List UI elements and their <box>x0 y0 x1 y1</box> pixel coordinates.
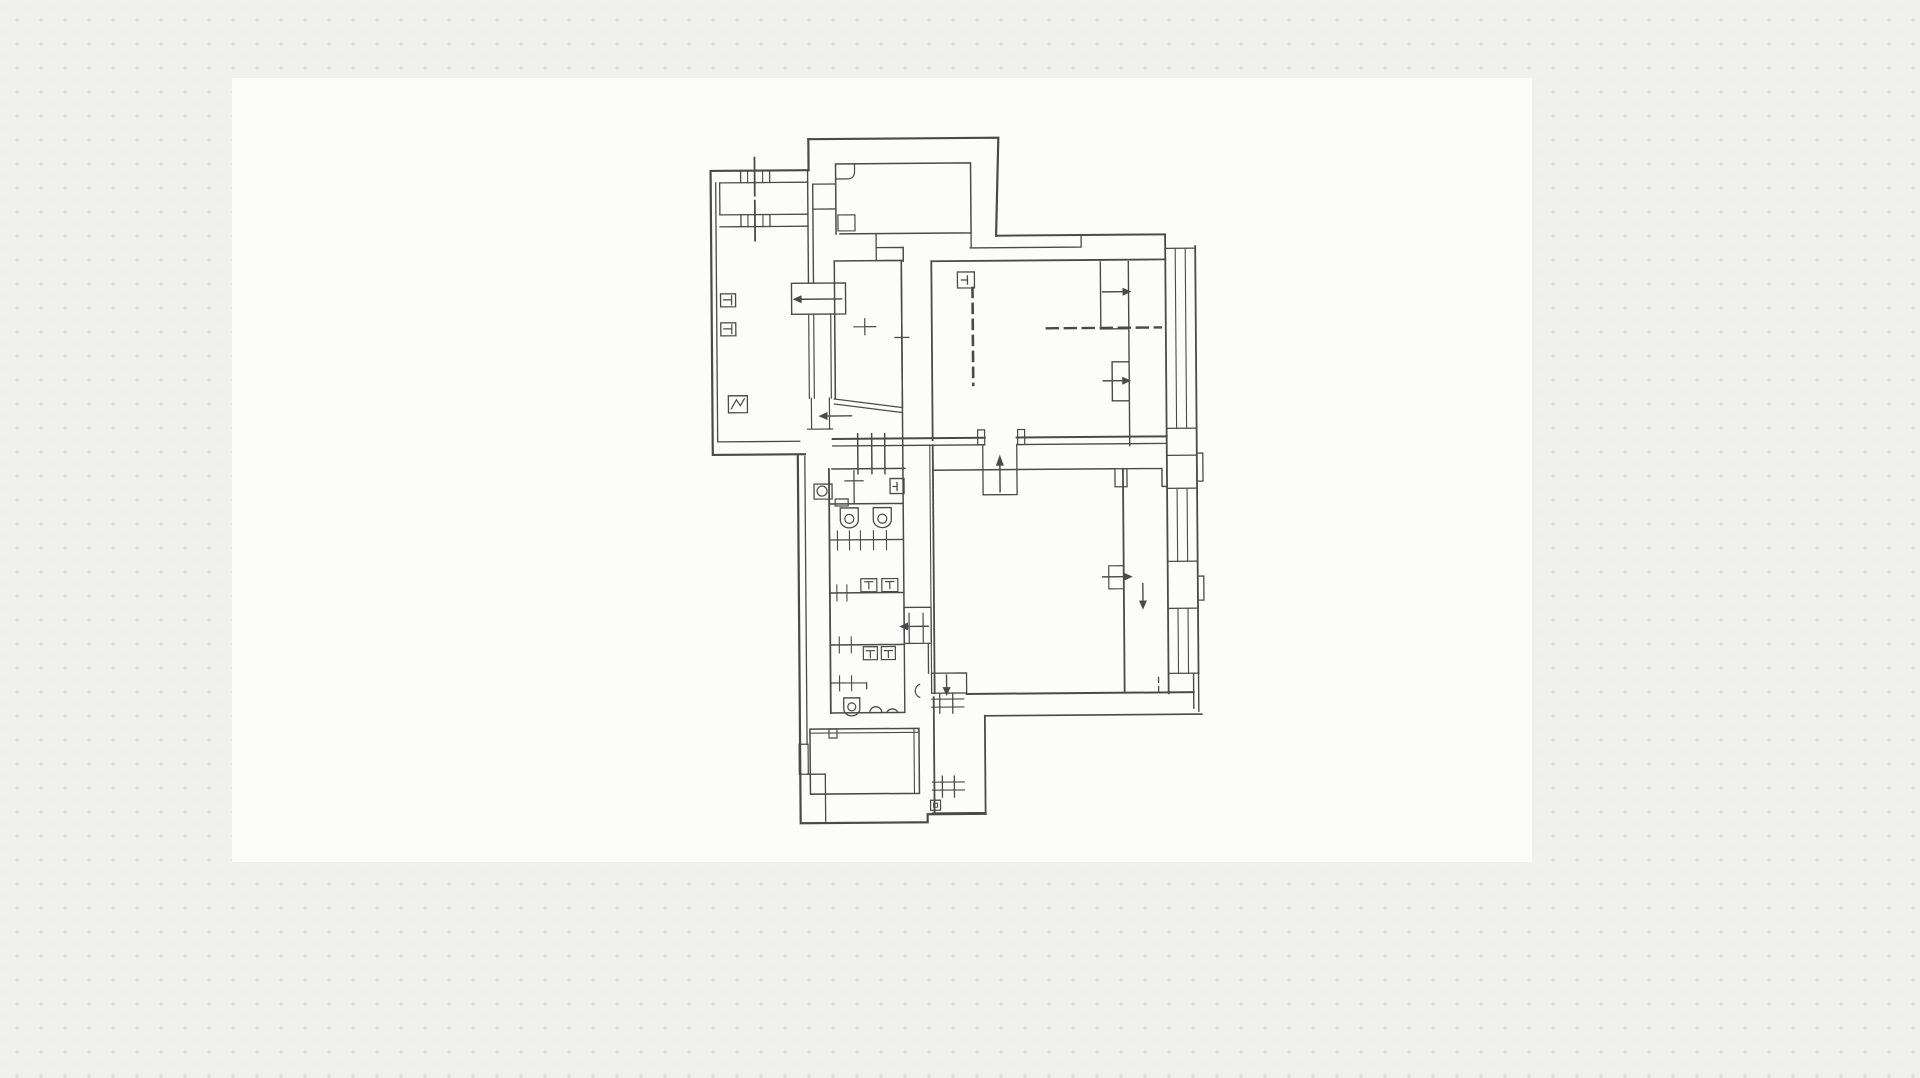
stair-arrow-right-icon <box>1100 262 1132 331</box>
door-swing-arc <box>915 684 920 697</box>
cistern-box-icon <box>881 647 895 660</box>
cistern-box-icon <box>861 579 877 592</box>
radiator-icon <box>721 323 736 336</box>
radiator-icon <box>721 294 736 307</box>
door-arrow-left-icon <box>791 283 845 314</box>
lower-hall <box>930 443 1202 716</box>
window-pier-strip <box>1167 488 1198 608</box>
equipment-zigzag-icon <box>728 396 747 413</box>
window-tick-icon <box>932 776 964 797</box>
door-arrow-down-icon <box>932 673 967 696</box>
shaft-strip <box>899 607 932 712</box>
stair-arrow-right-icon <box>1103 331 1132 446</box>
flag-box-icon <box>957 272 974 288</box>
floor-plan-drawing <box>0 0 1920 1078</box>
window-pier-strip <box>1168 608 1199 673</box>
bottom-room <box>810 728 920 794</box>
hatched-wall-segment <box>799 744 808 774</box>
door-arrow-down-icon <box>1139 584 1147 610</box>
cistern-box-icon <box>882 578 898 591</box>
dashed-guide-line <box>972 288 973 385</box>
east-facade-windows <box>1165 234 1205 711</box>
upper-block <box>808 136 1168 644</box>
toilet-icon <box>873 508 891 528</box>
window-tick-icon <box>932 693 964 713</box>
canvas-dot-grid[interactable] <box>0 0 1920 1078</box>
window-pier-strip <box>1165 248 1196 428</box>
stair-arrow-right-icon <box>1103 566 1133 589</box>
bottom-right-room <box>930 693 986 814</box>
flag-box-icon <box>890 478 904 493</box>
door-arrow-left-icon <box>899 607 931 643</box>
door-arrow-left-icon <box>807 398 851 429</box>
left-wing-room <box>710 157 810 455</box>
main-wall <box>833 428 1168 496</box>
toilet-icon <box>840 508 858 528</box>
upper-hall <box>931 259 1166 440</box>
upper-inner-room <box>836 163 972 249</box>
hatched-wall-segment <box>876 247 903 260</box>
cistern-box-icon <box>863 647 877 660</box>
